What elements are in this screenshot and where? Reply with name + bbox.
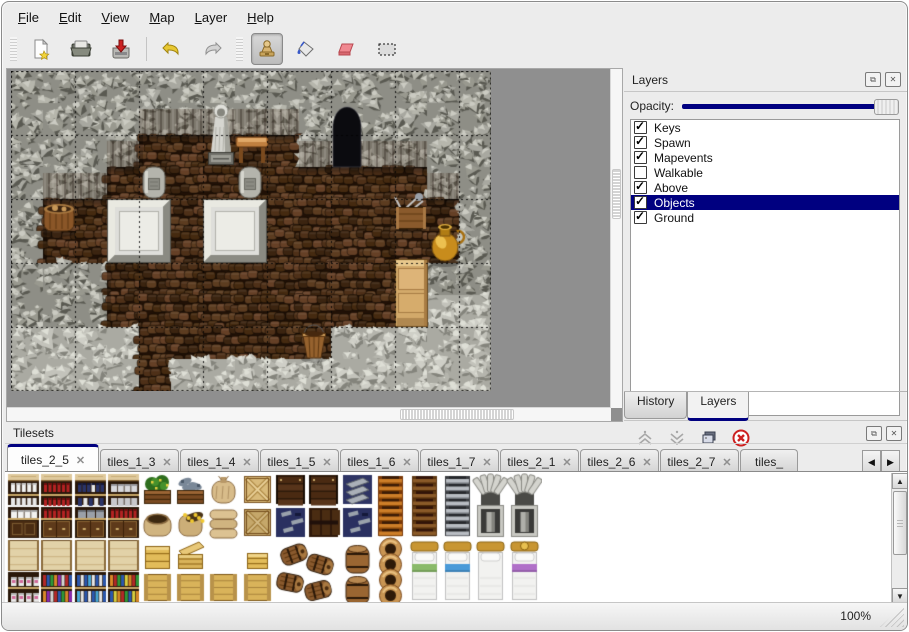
fill-bucket-icon bbox=[295, 38, 319, 60]
new-file-button[interactable] bbox=[25, 33, 57, 65]
close-dock-icon[interactable]: ✕ bbox=[885, 72, 901, 87]
opacity-slider-track[interactable] bbox=[682, 104, 899, 109]
layer-row-spawn[interactable]: Spawn bbox=[631, 135, 899, 150]
map-vertical-scrollbar[interactable] bbox=[610, 69, 622, 408]
tilesets-dock-titlebar: Tilesets ⧉ ✕ bbox=[5, 422, 908, 444]
toolbar bbox=[6, 31, 407, 66]
stamp-tool-button[interactable] bbox=[251, 33, 283, 65]
layers-dock-title: Layers bbox=[632, 73, 668, 87]
fill-tool-button[interactable] bbox=[291, 33, 323, 65]
close-tab-icon[interactable]: ✕ bbox=[562, 456, 571, 469]
menu-help[interactable]: Help bbox=[237, 7, 284, 28]
close-tab-icon[interactable]: ✕ bbox=[162, 456, 171, 469]
tileset-tab-tiles_1_4[interactable]: tiles_1_4✕ bbox=[180, 449, 259, 472]
save-file-button[interactable] bbox=[105, 33, 137, 65]
visibility-checkbox[interactable] bbox=[634, 211, 647, 224]
tilesets-dock: Tilesets ⧉ ✕ tiles_2_5✕ tiles_1_3✕ tiles… bbox=[5, 422, 908, 604]
rect-select-tool-button[interactable] bbox=[371, 33, 403, 65]
scroll-up-icon[interactable]: ▲ bbox=[892, 473, 908, 489]
eraser-tool-button[interactable] bbox=[331, 33, 363, 65]
undo-button[interactable] bbox=[156, 33, 188, 65]
visibility-checkbox[interactable] bbox=[634, 121, 647, 134]
save-icon bbox=[109, 38, 133, 60]
float-dock-icon[interactable]: ⧉ bbox=[866, 426, 882, 441]
stamp-icon bbox=[256, 38, 278, 60]
layer-row-walkable[interactable]: Walkable bbox=[631, 165, 899, 180]
tileset-tab-tiles_1_5[interactable]: tiles_1_5✕ bbox=[260, 449, 339, 472]
close-tab-icon[interactable]: ✕ bbox=[402, 456, 411, 469]
visibility-checkbox[interactable] bbox=[634, 166, 647, 179]
close-tab-icon[interactable]: ✕ bbox=[722, 456, 731, 469]
layers-dock: Layers ⧉ ✕ Opacity: Keys Spawn Mapevents… bbox=[624, 68, 907, 420]
new-file-icon bbox=[30, 38, 52, 60]
status-bar: 100% bbox=[2, 602, 907, 630]
tileset-tab-tiles_1_6[interactable]: tiles_1_6✕ bbox=[340, 449, 419, 472]
close-tab-icon[interactable]: ✕ bbox=[642, 456, 651, 469]
toolbar-drag-handle[interactable] bbox=[10, 37, 17, 61]
close-tab-icon[interactable]: ✕ bbox=[242, 456, 251, 469]
visibility-checkbox[interactable] bbox=[634, 151, 647, 164]
map-canvas[interactable] bbox=[11, 71, 491, 391]
tileset-content: ▲ ▼ bbox=[5, 471, 908, 604]
close-tab-icon[interactable]: ✕ bbox=[76, 454, 85, 467]
layers-dock-titlebar: Layers ⧉ ✕ bbox=[624, 68, 907, 92]
layer-row-mapevents[interactable]: Mapevents bbox=[631, 150, 899, 165]
menu-view[interactable]: View bbox=[91, 7, 139, 28]
opacity-row: Opacity: bbox=[630, 96, 899, 116]
redo-icon bbox=[200, 38, 224, 60]
resize-grip[interactable] bbox=[880, 605, 904, 627]
eraser-icon bbox=[335, 38, 359, 60]
opacity-label: Opacity: bbox=[630, 99, 674, 113]
tileset-vscroll-thumb[interactable] bbox=[893, 491, 907, 555]
layer-row-ground[interactable]: Ground bbox=[631, 210, 899, 225]
map-horizontal-scrollbar[interactable] bbox=[7, 407, 611, 421]
tileset-tab-tiles_2_7[interactable]: tiles_2_7✕ bbox=[660, 449, 739, 472]
menu-bar: File Edit View Map Layer Help bbox=[8, 6, 284, 29]
toolbar-separator bbox=[146, 37, 147, 61]
tab-history[interactable]: History bbox=[624, 392, 687, 419]
visibility-checkbox[interactable] bbox=[634, 136, 647, 149]
rect-select-icon bbox=[375, 38, 399, 60]
tileset-canvas[interactable] bbox=[7, 473, 542, 604]
visibility-checkbox[interactable] bbox=[634, 196, 647, 209]
menu-file[interactable]: File bbox=[8, 7, 49, 28]
menu-map[interactable]: Map bbox=[139, 7, 184, 28]
redo-button[interactable] bbox=[196, 33, 228, 65]
tileset-tab-tiles_2_6[interactable]: tiles_2_6✕ bbox=[580, 449, 659, 472]
tab-layers[interactable]: Layers bbox=[687, 392, 749, 421]
map-hscroll-thumb[interactable] bbox=[400, 409, 514, 420]
opacity-slider[interactable] bbox=[682, 99, 899, 113]
tileset-tab-tiles_1_3[interactable]: tiles_1_3✕ bbox=[100, 449, 179, 472]
map-viewport bbox=[6, 68, 623, 422]
layer-list: Keys Spawn Mapevents Walkable Above Obje… bbox=[630, 119, 900, 416]
float-dock-icon[interactable]: ⧉ bbox=[865, 72, 881, 87]
menu-edit[interactable]: Edit bbox=[49, 7, 91, 28]
tilesets-dock-title: Tilesets bbox=[13, 426, 54, 440]
close-tab-icon[interactable]: ✕ bbox=[482, 456, 491, 469]
layer-row-objects[interactable]: Objects bbox=[631, 195, 899, 210]
tileset-tab-bar: tiles_2_5✕ tiles_1_3✕ tiles_1_4✕ tiles_1… bbox=[7, 444, 868, 472]
close-tab-icon[interactable]: ✕ bbox=[322, 456, 331, 469]
layer-row-keys[interactable]: Keys bbox=[631, 120, 899, 135]
dock-tab-bar: History Layers bbox=[624, 391, 907, 420]
close-dock-icon[interactable]: ✕ bbox=[886, 426, 902, 441]
opacity-slider-handle[interactable] bbox=[874, 99, 899, 115]
toolbar-drag-handle[interactable] bbox=[236, 37, 243, 61]
zoom-level: 100% bbox=[840, 609, 871, 623]
open-folder-icon bbox=[69, 38, 93, 60]
tileset-tab-tiles_2_1[interactable]: tiles_2_1✕ bbox=[500, 449, 579, 472]
open-file-button[interactable] bbox=[65, 33, 97, 65]
tileset-tab-tiles_2_5[interactable]: tiles_2_5✕ bbox=[7, 444, 99, 472]
undo-icon bbox=[160, 38, 184, 60]
layer-row-above[interactable]: Above bbox=[631, 180, 899, 195]
tileset-vertical-scrollbar[interactable]: ▲ ▼ bbox=[891, 473, 908, 604]
visibility-checkbox[interactable] bbox=[634, 181, 647, 194]
map-vscroll-thumb[interactable] bbox=[612, 169, 621, 219]
window-frame: File Edit View Map Layer Help bbox=[1, 1, 908, 631]
tileset-tab-tiles_1_7[interactable]: tiles_1_7✕ bbox=[420, 449, 499, 472]
app-window: File Edit View Map Layer Help bbox=[0, 0, 909, 632]
tileset-tab-partial[interactable]: tiles_ bbox=[740, 449, 798, 472]
menu-layer[interactable]: Layer bbox=[185, 7, 238, 28]
